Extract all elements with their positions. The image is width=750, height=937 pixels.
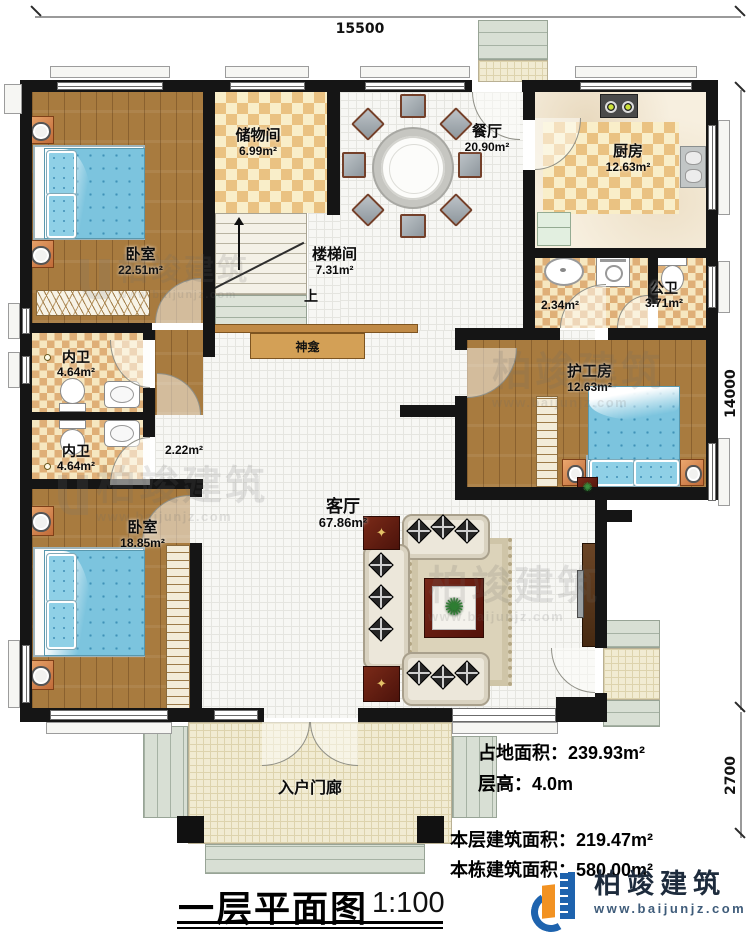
window [230,82,305,90]
window [57,82,163,90]
wall [455,340,467,350]
stat-floor-area: 本层建筑面积：219.47m² [450,826,653,852]
stat-value: 4.0m [532,774,573,794]
wash-area-basin [544,257,584,286]
window [708,443,716,501]
burner-icon [605,101,617,113]
title-underline [177,921,443,924]
shrine-label: 神龛 [295,338,319,355]
porch-column-right [417,816,444,843]
company-logo-icon [533,868,585,930]
room-name: 内卫 [45,350,107,366]
stat-floor-height: 层高：4.0m [478,770,573,796]
dimension-line-right-main [740,90,742,710]
entry-porch-steps-front [205,844,425,874]
stairs-up-label: 上 [296,289,326,305]
wall [358,708,454,722]
window [214,710,258,720]
window-sill [8,303,20,339]
window [22,308,30,334]
back-porch-tile [478,60,548,82]
washing-machine [596,256,630,287]
toilet-tank [59,420,86,429]
logo-tower-orange [542,884,555,919]
company-website: www.baijunjz.com [594,902,746,915]
window [365,82,465,90]
room-label-inner-bath2: 内卫 4.64m² [45,444,107,473]
company-name: 柏竣建筑 [594,868,746,902]
burner-icon [622,101,634,113]
side-table: ✦ [363,666,400,702]
room-area: 3.71m² [633,297,695,310]
room-name: 内卫 [45,444,107,460]
bedroom1-pillow [47,194,76,238]
dimension-line-right-porch [740,712,742,838]
stat-value: 219.47m² [576,830,653,850]
window [50,710,168,720]
stove [600,94,638,118]
stat-label: 层高： [478,774,532,794]
bedroom1-pillow [47,151,76,195]
room-label-storage: 储物间 6.99m² [208,128,308,158]
room-area: 12.63m² [542,381,637,394]
table-star-icon: ✦ [376,676,387,692]
window-sill [360,66,470,78]
toilet-bowl [60,378,85,404]
bedroom2-pillow [47,601,76,649]
wall [595,500,607,648]
company-logo: 柏竣建筑 www.baijunjz.com [533,868,746,930]
wall [400,405,455,417]
side-porch-steps-top [603,620,660,648]
wall [327,80,340,215]
window-sill [46,722,172,734]
shrine-table: 神龛 [250,333,365,359]
room-area: 12.63m² [578,161,678,174]
caregiver-bed [588,386,680,460]
caregiver-nightstand [680,459,704,486]
room-label-wash-area: 2.34m² [525,299,595,312]
room-label-inner-bath1: 内卫 4.64m² [45,350,107,379]
plant-icon: ✺ [444,596,464,620]
room-area: 6.99m² [208,145,308,158]
bedroom2-closet [166,545,190,713]
room-name: 卧室 [88,247,193,264]
room-area: 20.90m² [437,141,537,154]
stairs-up-text: 上 [304,288,318,304]
room-area: 67.86m² [293,516,393,531]
shrine-shelf [213,324,418,333]
window [452,708,556,722]
stat-value: 239.93m² [568,743,645,763]
room-name: 卧室 [90,520,195,537]
wall [608,328,718,340]
wall [595,693,607,722]
room-name: 餐厅 [437,124,537,141]
wall [455,396,467,500]
drawing-scale: 1:100 [372,887,445,920]
window [580,82,692,90]
room-label-public-bath: 公卫 3.71m² [633,281,695,310]
wall [20,80,32,722]
window-sill [8,352,20,388]
room-name: 护工房 [542,364,637,381]
toilet-tank [59,403,86,412]
room-area: 4.64m² [45,366,107,379]
wall [143,330,155,340]
wall [523,80,535,120]
kitchen-sink [680,146,706,188]
room-name: 楼梯间 [287,247,382,264]
caregiver-closet [536,396,558,487]
window-sill [575,66,697,78]
tv [577,570,584,618]
wall [190,487,202,497]
wall [190,543,202,722]
bedroom2-pillow [47,554,76,602]
caregiver-pillow [634,460,679,486]
window-sill [225,66,309,78]
room-label-bedroom1: 卧室 22.51m² [88,247,193,277]
plant-icon: ✺ [582,481,592,493]
floor-plan-canvas: 神龛 [0,0,750,937]
room-area: 4.64m² [45,460,107,473]
side-porch-tile [603,648,660,700]
porch-column-left [177,816,204,843]
room-label-dining: 餐厅 20.90m² [437,124,537,154]
room-area: 2.22m² [152,444,216,457]
room-name: 储物间 [208,128,308,145]
room-label-bedroom2: 卧室 18.85m² [90,520,195,550]
wall [455,328,560,340]
window [708,125,716,210]
stat-land-area: 占地面积：239.93m² [478,739,645,765]
side-porch-steps-bottom [603,700,660,727]
window [708,266,716,308]
wall [523,248,718,258]
window-sill [452,722,558,734]
stat-label: 本层建筑面积： [450,830,576,850]
dimension-tick [734,5,745,16]
dining-chair [342,152,366,178]
room-name: 客厅 [293,497,393,516]
room-name: 公卫 [633,281,695,297]
wall [20,323,152,333]
room-area: 2.34m² [525,299,595,312]
window-sill [50,66,170,78]
wall [20,412,155,420]
room-label-living: 客厅 67.86m² [293,497,393,531]
bedroom1-wardrobe [36,290,150,316]
window [22,645,30,703]
dimension-width: 15500 [328,21,392,37]
room-area: 18.85m² [90,537,195,550]
stat-label: 占地面积： [478,743,568,763]
dimension-tick [30,5,41,16]
title-underline [177,927,443,929]
window-sill [4,84,22,114]
room-label-stairwell: 楼梯间 7.31m² [287,247,382,277]
dining-chair [458,152,482,178]
logo-tower-blue [560,872,575,919]
coffee-table: ✺ [424,578,484,638]
room-label-kitchen: 厨房 12.63m² [578,144,678,174]
window-sill [718,120,730,215]
window-sill [8,640,20,708]
window-sill [718,438,730,506]
window-sill [718,261,730,313]
room-area: 22.51m² [88,264,193,277]
room-label-hallway: 2.22m² [152,444,216,457]
room-label-porch: 入户门廊 [240,780,380,798]
room-label-caregiver: 护工房 12.63m² [542,364,637,394]
stairs-direction-arrow [238,222,240,270]
room-name: 入户门廊 [240,780,380,798]
dimension-line-top [35,16,741,18]
wall [607,510,632,522]
fridge [537,212,571,246]
window [22,356,30,384]
room-area: 7.31m² [287,264,382,277]
page-title: 一层平面图 [178,880,368,932]
room-name: 厨房 [578,144,678,161]
bath-basin [104,381,140,408]
dimension-height-porch: 2700 [723,752,739,800]
back-porch-steps [478,20,548,60]
entry-porch-steps-left [143,726,188,818]
dimension-height-main: 14000 [723,366,739,422]
wall [203,80,215,357]
dining-chair [400,214,426,238]
dining-chair [400,94,426,118]
